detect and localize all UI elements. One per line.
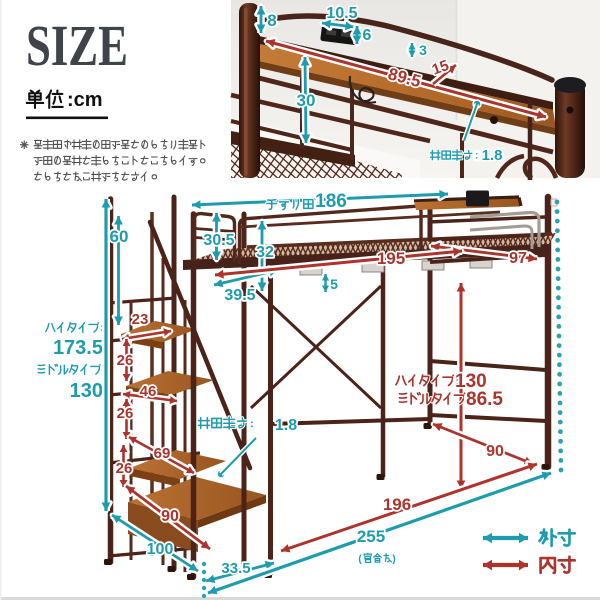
svg-text::: : — [475, 150, 478, 161]
svg-text:173.5: 173.5 — [53, 337, 103, 359]
svg-text:8: 8 — [267, 11, 276, 30]
svg-text:186: 186 — [315, 191, 347, 212]
svg-text:39.5: 39.5 — [224, 287, 255, 304]
svg-text:32: 32 — [256, 244, 274, 261]
svg-text:195: 195 — [377, 249, 405, 268]
svg-text:196: 196 — [383, 495, 411, 514]
svg-text:30.5: 30.5 — [203, 232, 234, 249]
svg-text:): ) — [392, 554, 395, 565]
svg-text:97: 97 — [509, 250, 527, 267]
svg-text:23: 23 — [132, 311, 149, 328]
svg-text:30: 30 — [297, 91, 316, 110]
svg-text:26: 26 — [117, 405, 134, 422]
svg-text:3: 3 — [419, 42, 427, 58]
svg-text:1.8: 1.8 — [482, 147, 503, 164]
svg-text:69: 69 — [154, 445, 171, 462]
svg-text:5: 5 — [330, 276, 338, 292]
svg-text:86.5: 86.5 — [466, 389, 503, 410]
svg-text:90: 90 — [486, 443, 504, 460]
svg-text:255: 255 — [357, 527, 385, 546]
svg-text:33.5: 33.5 — [221, 560, 250, 577]
svg-text:90: 90 — [161, 508, 179, 525]
svg-text:100: 100 — [147, 541, 174, 558]
svg-text:1.8: 1.8 — [275, 417, 297, 434]
svg-text:46: 46 — [140, 383, 157, 400]
svg-text:10.5: 10.5 — [326, 5, 357, 22]
svg-text::: : — [250, 418, 254, 430]
svg-text:26: 26 — [116, 460, 133, 477]
svg-text:6: 6 — [363, 27, 372, 44]
svg-text:60: 60 — [110, 227, 129, 246]
svg-text:130: 130 — [70, 380, 103, 402]
svg-text:SIZE: SIZE — [26, 13, 128, 78]
svg-text:26: 26 — [117, 352, 134, 369]
svg-text::cm: :cm — [67, 89, 103, 111]
